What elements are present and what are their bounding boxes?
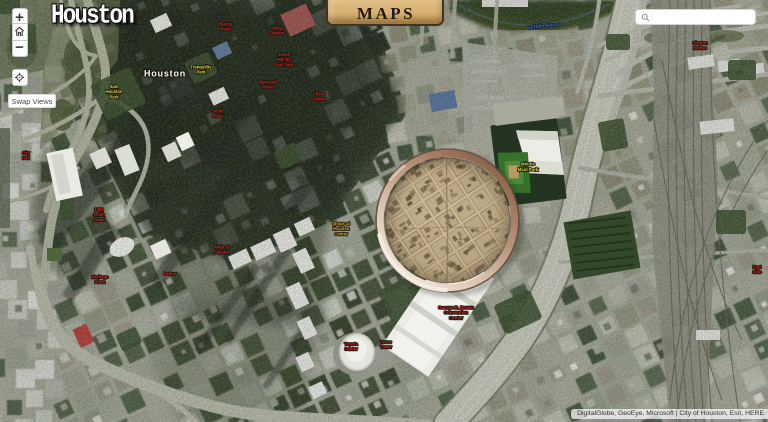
svg-text:Square: Square [215, 250, 230, 255]
svg-text:Side: Side [753, 270, 763, 275]
svg-text:Maid Park: Maid Park [518, 167, 539, 172]
svg-text:Center: Center [344, 347, 358, 352]
svg-text:Tower: Tower [380, 345, 392, 350]
svg-text:Convention: Convention [444, 310, 468, 315]
svg-text:George R. Brown: George R. Brown [438, 305, 474, 310]
svg-text:Center: Center [449, 316, 463, 321]
svg-text:Perf. Arts: Perf. Arts [275, 62, 294, 67]
svg-text:Plaza: Plaza [95, 280, 106, 285]
svg-text:Center: Center [334, 231, 348, 236]
svg-text:Street: Street [93, 217, 105, 222]
svg-text:Place: Place [263, 85, 275, 90]
svg-text:Center: Center [312, 97, 326, 102]
svg-text:Park: Park [196, 70, 206, 75]
svg-text:Houston: Houston [144, 68, 186, 78]
svg-text:Lamar: Lamar [164, 271, 177, 276]
svg-text:Place: Place [221, 27, 233, 32]
svg-text:Hall: Hall [22, 156, 30, 161]
svg-text:Homes: Homes [693, 46, 708, 51]
svg-text:Minute: Minute [521, 161, 536, 166]
svg-text:Plaza: Plaza [213, 114, 224, 119]
svg-text:Park: Park [109, 94, 119, 99]
svg-text:Theatre: Theatre [269, 31, 285, 36]
